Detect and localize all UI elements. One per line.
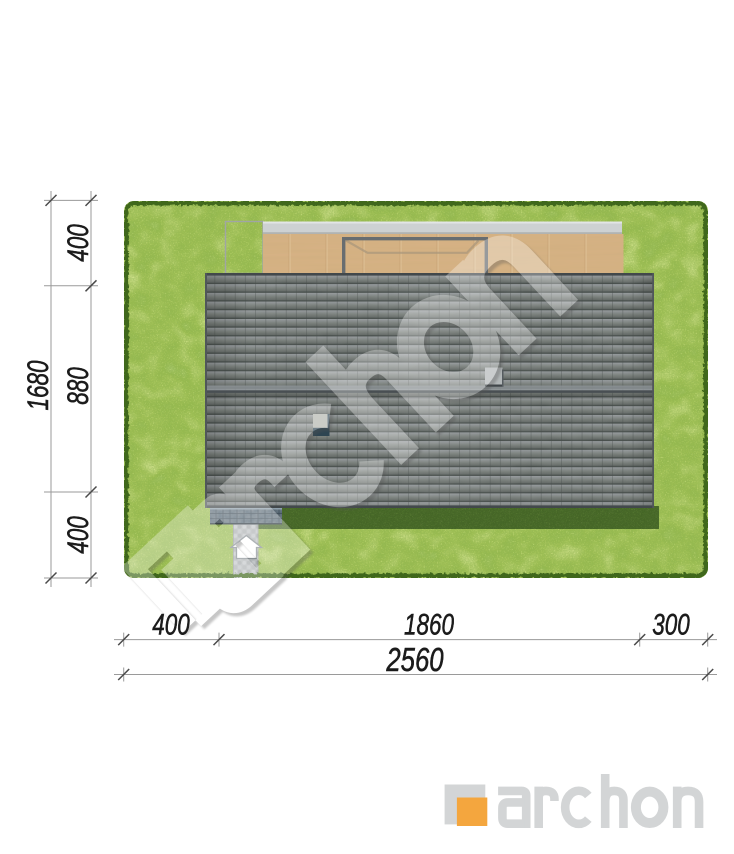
svg-text:400: 400 bbox=[152, 607, 190, 641]
svg-text:400: 400 bbox=[61, 516, 95, 554]
svg-text:1860: 1860 bbox=[404, 607, 454, 641]
svg-text:2560: 2560 bbox=[386, 642, 445, 679]
svg-text:400: 400 bbox=[61, 224, 95, 262]
svg-text:300: 300 bbox=[652, 607, 690, 641]
svg-text:880: 880 bbox=[61, 367, 95, 405]
svg-text:1680: 1680 bbox=[21, 360, 55, 410]
